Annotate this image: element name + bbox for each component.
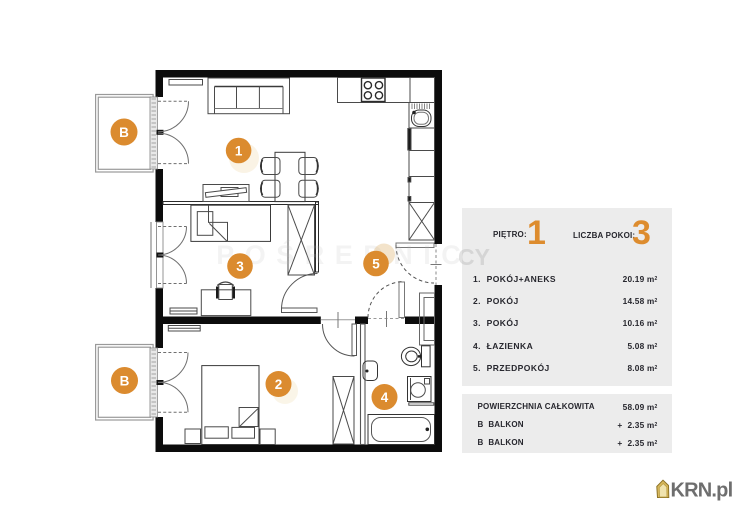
svg-text:5: 5 xyxy=(372,256,380,271)
svg-text:4: 4 xyxy=(381,390,389,405)
svg-text:B: B xyxy=(119,125,129,140)
svg-text:B: B xyxy=(120,373,130,388)
svg-text:2: 2 xyxy=(275,377,283,392)
svg-text:3: 3 xyxy=(236,259,244,274)
svg-text:KRN.pl: KRN.pl xyxy=(671,480,733,502)
svg-text:1: 1 xyxy=(235,143,243,158)
